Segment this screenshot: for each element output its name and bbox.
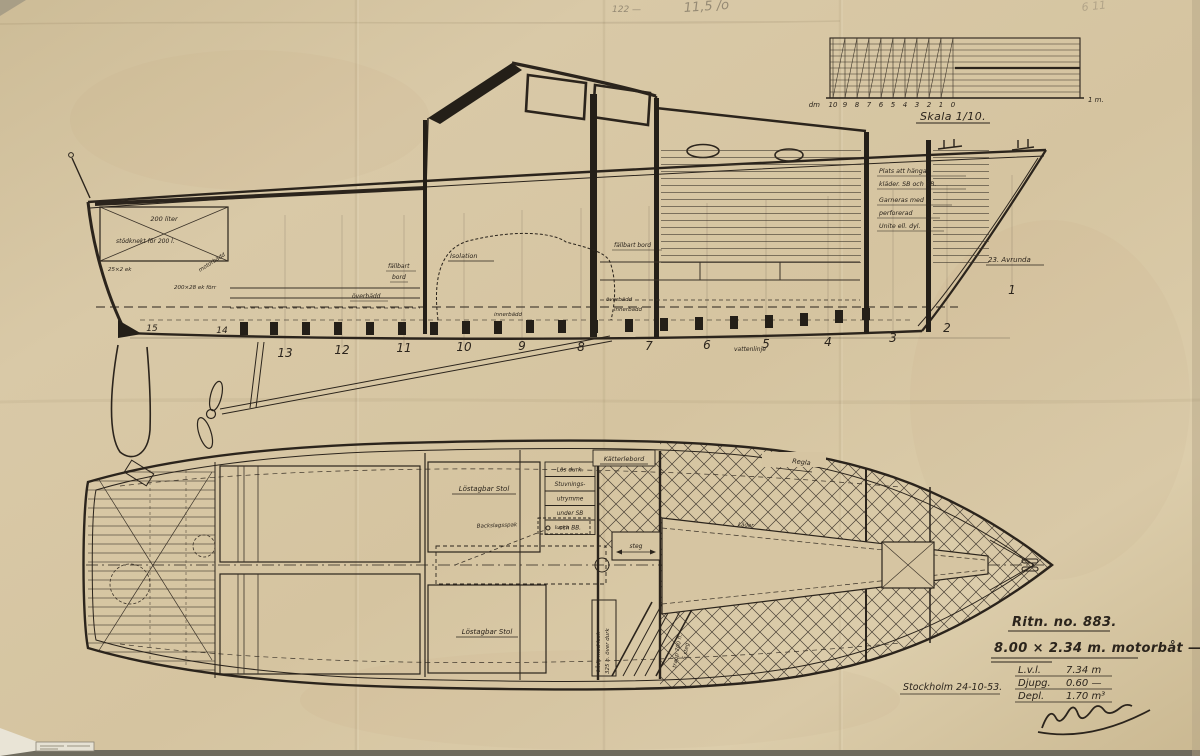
label-hatch: lucka xyxy=(555,525,570,531)
wardrobe-line: perforerad xyxy=(878,210,913,217)
label-locker-box: Låda med lock xyxy=(595,631,602,672)
frame-number: 4 xyxy=(824,335,832,349)
label-timber2: 200×28 ek förr xyxy=(174,285,217,291)
label-step: steg xyxy=(630,543,643,550)
frame-number: 14 xyxy=(216,326,228,336)
label-seat-fwd: Löstagbar Stol xyxy=(459,485,510,493)
scale-left-unit: dm xyxy=(809,101,820,109)
storage-line: under SB xyxy=(557,511,583,517)
spec-value: 0.60 — xyxy=(1066,678,1101,689)
frame-number: 10 xyxy=(456,340,472,354)
scale-tick: 8 xyxy=(855,101,860,109)
scale-tick: 9 xyxy=(843,101,848,109)
label-table: Kätterlebord xyxy=(604,455,645,463)
scale-tick: 5 xyxy=(891,101,896,109)
frame-number: 8 xyxy=(577,340,585,354)
frame-number: 2 xyxy=(943,321,951,335)
archive-stamp xyxy=(36,742,94,751)
frame-number: 12 xyxy=(334,343,349,357)
frame-number: 15 xyxy=(146,324,158,334)
drawing-sheet: 122 — 11,5 /o 6 11 dm 10 9 8 7 6 5 4 3 2… xyxy=(0,0,1200,756)
frame-number: 9 xyxy=(518,339,526,353)
label-upper-berth: överbädd xyxy=(352,293,381,300)
scale-tick: 2 xyxy=(927,101,932,109)
label-inner-berth: innerbädd xyxy=(614,307,642,313)
panelling xyxy=(933,150,989,268)
pencil-note-left: 122 — xyxy=(612,5,641,15)
scale-caption: Skala 1/10. xyxy=(920,110,986,123)
spec-label: L.v.l. xyxy=(1018,665,1041,676)
spec-value: 7.34 m xyxy=(1066,665,1101,676)
label-isolation: Isolation xyxy=(450,252,478,260)
label-locker-box: 325 h. över durk xyxy=(605,628,611,674)
frame-number: 6 xyxy=(703,338,711,352)
scale-tick: 6 xyxy=(879,101,884,109)
frame-number: 5 xyxy=(762,337,770,351)
scale-tick: 7 xyxy=(867,101,872,109)
wardrobe-line: Garneras med xyxy=(879,197,925,204)
label-seat-aft: Löstagbar Stol xyxy=(462,628,513,636)
spec-label: Djupg. xyxy=(1018,678,1051,689)
wardrobe-line: Unite ell. dyl. xyxy=(879,222,921,230)
label-folding-table: bord xyxy=(392,274,406,281)
frame-number: 3 xyxy=(889,331,897,345)
frame-number: 7 xyxy=(645,339,653,353)
floor-gratings xyxy=(88,468,215,678)
storage-line: Stuvnings- xyxy=(555,482,586,488)
label-inner-berth: innerbädd xyxy=(494,312,522,318)
wardrobe-line: kläder. SB och BB. xyxy=(879,181,936,188)
drawing-number: Ritn. no. 883. xyxy=(1012,615,1117,630)
place-date: Stockholm 24-10-53. xyxy=(903,682,1002,693)
label-tank: 200 liter xyxy=(150,215,179,223)
scale-right-unit: 1 m. xyxy=(1088,96,1104,104)
spec-value: 1.70 m³ xyxy=(1066,691,1105,702)
boat-blueprint: 122 — 11,5 /o 6 11 dm 10 9 8 7 6 5 4 3 2… xyxy=(0,0,1200,756)
frame-number: 11 xyxy=(396,341,411,355)
label-upholstery: Läder xyxy=(738,522,755,529)
scale-tick: 4 xyxy=(903,101,907,109)
scale-tick: 10 xyxy=(829,101,838,109)
storage-line: utrymme xyxy=(557,497,584,503)
label-tank-support: stödknekt för 200 l. xyxy=(116,238,175,245)
frame-number: 1 xyxy=(1008,283,1016,297)
wardrobe-line: Plats att hänga xyxy=(879,167,927,175)
scale-tick: 0 xyxy=(951,101,956,109)
label-upper-berth: överbädd xyxy=(606,297,633,303)
label-stem-note: 23. Avrunda xyxy=(988,256,1031,264)
storage-line: Lös durk. xyxy=(557,468,584,474)
boat-dimensions: 8.00 × 2.34 m. motorbåt — xyxy=(994,641,1200,656)
label-saloon-table: fällbart bord xyxy=(614,242,651,249)
label-folding-table: fällbart xyxy=(388,263,410,270)
scale-tick: 3 xyxy=(915,101,919,109)
spec-label: Depl. xyxy=(1018,691,1044,702)
scale-tick: 1 xyxy=(939,101,943,109)
label-timber1: 25×2 ek xyxy=(108,267,132,273)
panelling xyxy=(661,146,861,264)
frame-number: 13 xyxy=(277,346,292,360)
